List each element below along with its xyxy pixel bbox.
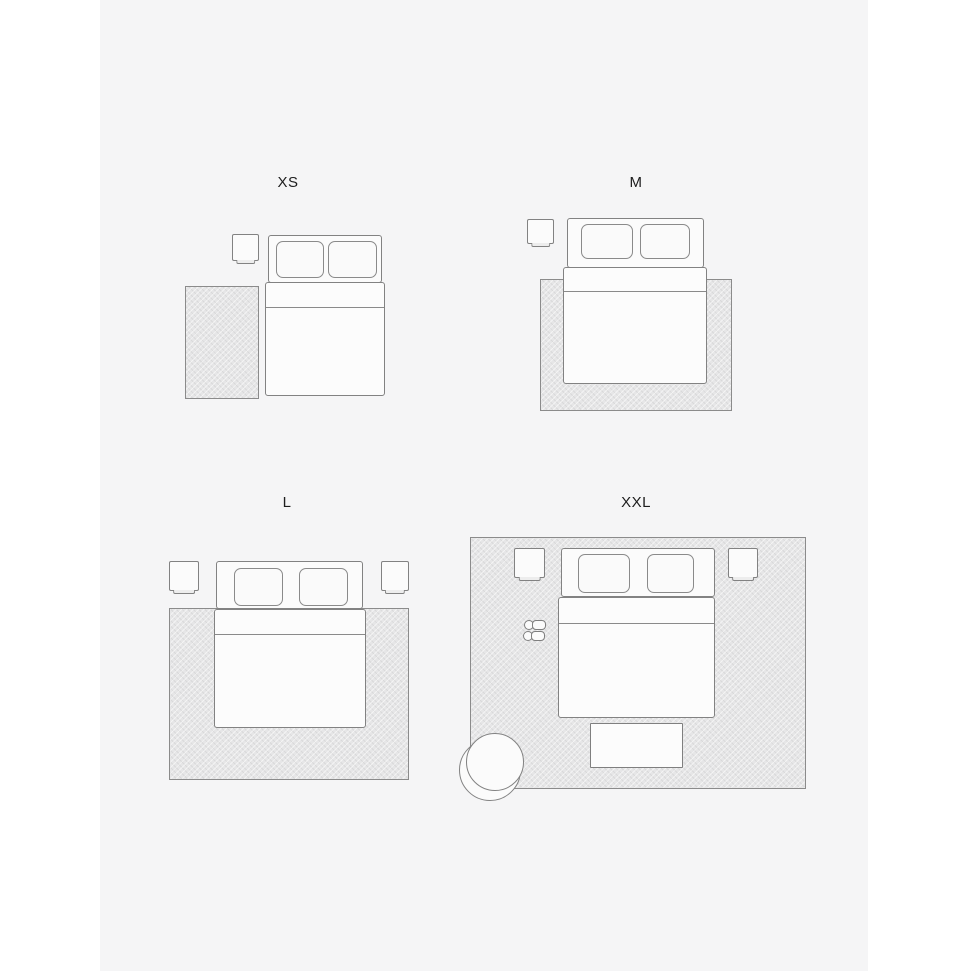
size-label-m: M	[630, 175, 643, 190]
bed-duvet	[563, 267, 707, 384]
nightstand-icon	[232, 234, 259, 261]
nightstand-left-icon	[514, 548, 545, 578]
pillow-icon	[578, 554, 630, 593]
nightstand-base	[732, 577, 754, 581]
duvet-fold-line	[215, 634, 365, 635]
bed-headboard	[216, 561, 363, 609]
size-guide-scene: XS M	[0, 0, 970, 971]
pillow-icon	[640, 224, 690, 259]
nightstand-left-icon	[169, 561, 199, 591]
nightstand-icon	[527, 219, 554, 244]
duvet-fold-line	[564, 291, 706, 292]
armchair-seat	[466, 733, 524, 791]
duvet-fold-line	[266, 307, 384, 308]
rug-xs-icon	[185, 286, 259, 399]
size-label-xs: XS	[277, 175, 298, 190]
bench-icon	[590, 723, 683, 768]
size-label-l: L	[283, 495, 292, 510]
nightstand-base	[531, 243, 551, 247]
bed-headboard	[561, 548, 715, 597]
nightstand-base	[385, 590, 405, 594]
pillow-icon	[647, 554, 694, 593]
nightstand-base	[518, 577, 541, 581]
pillow-icon	[328, 241, 377, 278]
nightstand-right-icon	[728, 548, 758, 578]
pillow-icon	[234, 568, 283, 606]
nightstand-right-icon	[381, 561, 409, 591]
duvet-fold-line	[559, 623, 714, 624]
bed-headboard	[567, 218, 704, 268]
pillow-icon	[581, 224, 633, 259]
pillow-icon	[299, 568, 348, 606]
slipper	[524, 620, 546, 630]
slipper-toe	[531, 631, 545, 641]
nightstand-base	[236, 260, 256, 264]
slipper	[523, 631, 546, 641]
slippers-icon	[524, 620, 546, 641]
size-label-xxl: XXL	[621, 495, 651, 510]
bed-duvet	[214, 609, 366, 728]
bed-headboard	[268, 235, 382, 283]
rug-size-guide: XS M	[0, 0, 970, 971]
bed-duvet	[265, 282, 385, 396]
slipper-toe	[532, 620, 546, 630]
pillow-icon	[276, 241, 324, 278]
bed-duvet	[558, 597, 715, 718]
nightstand-base	[173, 590, 195, 594]
